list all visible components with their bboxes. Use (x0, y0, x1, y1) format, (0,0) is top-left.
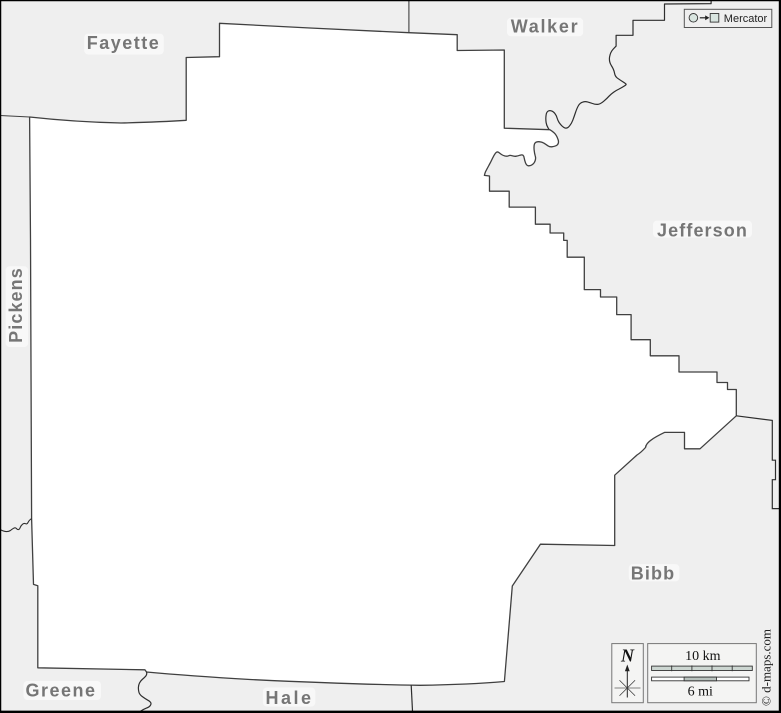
svg-text:Mercator: Mercator (724, 13, 768, 25)
svg-text:Pickens: Pickens (6, 267, 26, 343)
svg-text:Greene: Greene (25, 680, 96, 700)
svg-text:Bibb: Bibb (631, 564, 675, 584)
svg-text:10 km: 10 km (685, 649, 721, 664)
svg-text:Jefferson: Jefferson (657, 220, 748, 240)
svg-text:N: N (620, 646, 635, 666)
svg-text:Walker: Walker (511, 17, 580, 37)
svg-text:Hale: Hale (265, 688, 313, 708)
svg-text:6 mi: 6 mi (688, 684, 713, 699)
svg-text:© d-maps.com: © d-maps.com (759, 629, 774, 706)
svg-text:Fayette: Fayette (87, 33, 161, 53)
